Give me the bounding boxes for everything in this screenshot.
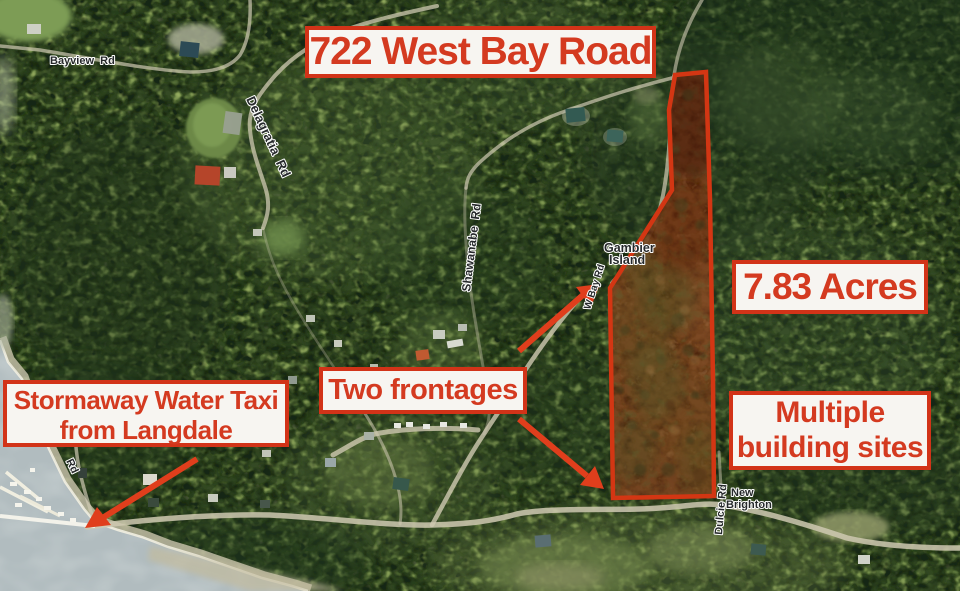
svg-text:Bayview Rd: Bayview Rd: [50, 55, 115, 67]
svg-text:New: New: [731, 487, 754, 499]
svg-text:Brighton: Brighton: [726, 499, 772, 511]
svg-text:Island: Island: [609, 253, 645, 267]
